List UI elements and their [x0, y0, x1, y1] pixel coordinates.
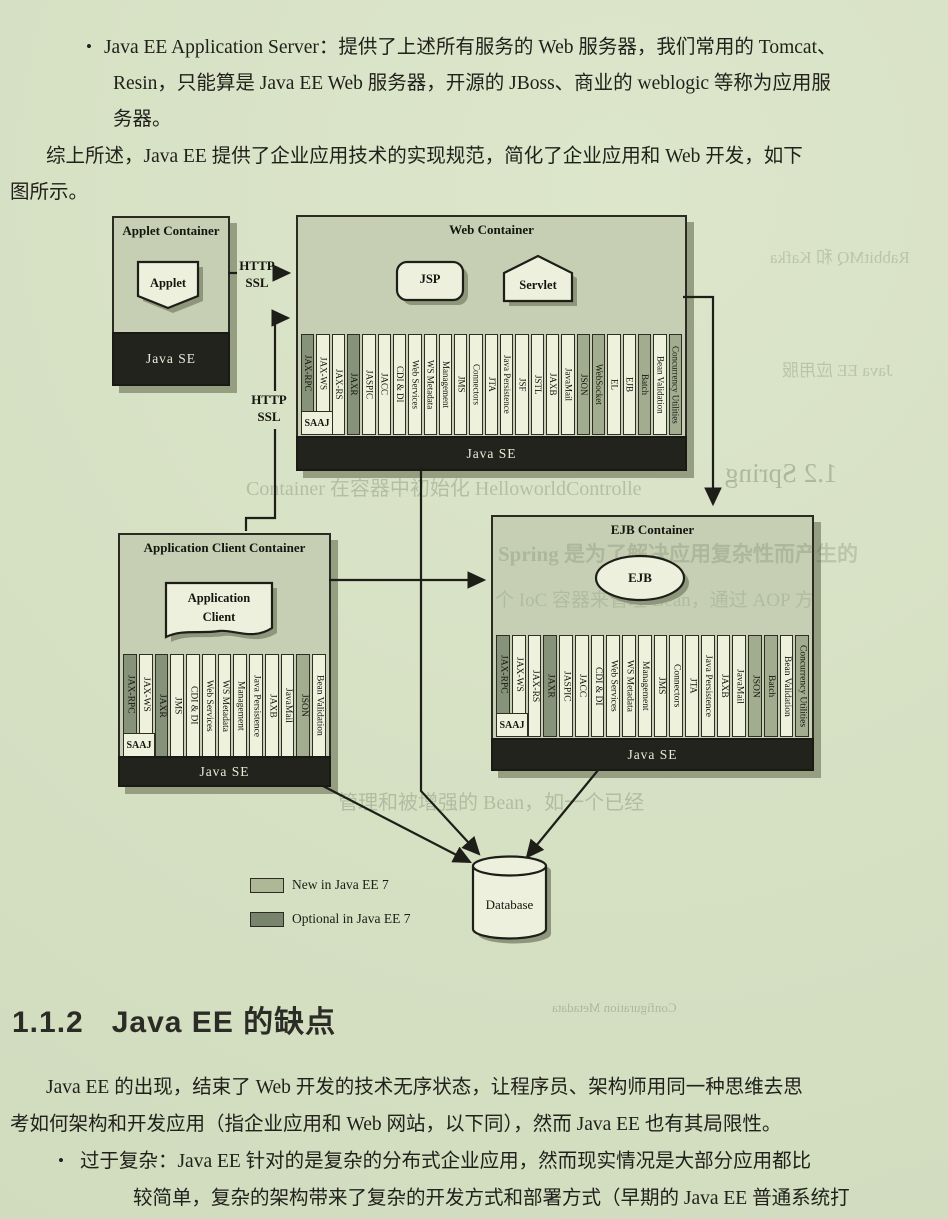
api-bar: Web Services: [408, 334, 421, 435]
api-bar: JavaMail: [281, 654, 295, 757]
intro-text: Java EE Application Server：提供了上述所有服务的 We…: [104, 37, 837, 58]
api-bar: JAXB: [265, 654, 279, 757]
api-bar-label: JAX-RS: [333, 369, 344, 400]
api-bar-label: JSF: [517, 378, 528, 392]
intro-bullet-line-2: Resin，只能算是 Java EE Web 服务器，开源的 JBoss、商业的…: [113, 66, 831, 95]
bleedthrough-text-mirrored: RabbitMQ 和 Kafka: [770, 243, 910, 268]
legend-optional: Optional in Java EE 7: [250, 911, 410, 927]
api-bar-label: JSON: [298, 694, 309, 717]
app-client-api-bars: JAX-RPC JAX-WS JAXR JMS CDI & DI Web Ser…: [122, 654, 327, 757]
api-bar: JAX-WS: [512, 635, 526, 714]
api-bar-label: JACC: [576, 674, 587, 697]
ejb-container-title: EJB Container: [493, 522, 812, 538]
api-bar-label: JMS: [172, 697, 183, 714]
web-api-bars: JAX-RPC JAX-WS JAX-RS JAXR JASPIC JACC C…: [300, 334, 683, 435]
api-bar-label: Concurrency Utilities: [670, 346, 681, 424]
api-bar-label: JAXB: [547, 373, 558, 396]
bullet-icon: •: [58, 1151, 64, 1171]
api-bar-label: EL: [608, 379, 619, 390]
saaj-box: SAAJ: [123, 733, 155, 757]
api-bar-label: JAXR: [348, 373, 359, 396]
api-bar-label: Java Persistence: [251, 675, 262, 737]
api-bar: JTA: [485, 334, 498, 435]
arrow-web-to-ejb: [683, 297, 713, 504]
api-bar-label: JTA: [686, 678, 697, 694]
api-bar-label: JavaMail: [562, 368, 573, 401]
bleedthrough-text: 管理和被增强的 Bean，如一个已经: [338, 786, 644, 815]
api-bar: JAXR: [543, 635, 557, 737]
application-client-label: Application Client: [166, 589, 272, 627]
legend-optional-swatch: [250, 912, 284, 927]
applet-container: Applet Container Java SE: [112, 216, 230, 386]
api-bar: CDI & DI: [393, 334, 406, 435]
legend-new: New in Java EE 7: [250, 877, 389, 893]
saaj-box: SAAJ: [496, 713, 528, 737]
java-se-label: Java SE: [466, 446, 516, 462]
api-bar-label: JAX-RPC: [302, 355, 313, 392]
api-bar-label: Java Persistence: [702, 655, 713, 717]
api-bar-label: JSON: [578, 374, 589, 396]
java-se-bar: Java SE: [118, 756, 331, 787]
api-bar: WS Metadata: [218, 654, 232, 757]
api-bar: Web Services: [202, 654, 216, 757]
api-bar: Web Services: [606, 635, 620, 737]
api-bar-label: JAX-WS: [513, 657, 524, 692]
ejb-api-bars: JAX-RPC JAX-WS JAX-RS JAXR JASPIC JACC C…: [495, 635, 810, 737]
saaj-box: SAAJ: [301, 411, 333, 435]
api-bar-label: JASPIC: [363, 370, 374, 399]
api-bar: Management: [439, 334, 452, 435]
api-bar: JACC: [575, 635, 589, 737]
api-bar: JSON: [296, 654, 310, 757]
api-bar-label: Web Services: [409, 360, 420, 409]
api-bar: JAXB: [546, 334, 559, 435]
section-para-line-1: Java EE 的出现，结束了 Web 开发的技术无序状态，让程序员、架构师用同…: [46, 1070, 803, 1099]
api-bar: CDI & DI: [591, 635, 605, 737]
java-se-bar: Java SE: [491, 738, 814, 771]
web-container-title: Web Container: [298, 222, 685, 238]
api-bar: JASPIC: [559, 635, 573, 737]
api-bar-label: JAXR: [156, 694, 167, 718]
bullet-icon: •: [86, 37, 92, 57]
api-bar-label: JMS: [455, 376, 466, 393]
java-se-bar: Java SE: [296, 436, 687, 471]
applet-label: Applet: [138, 276, 198, 291]
api-bar: JSON: [577, 334, 590, 435]
api-bar: JMS: [170, 654, 184, 757]
database-label: Database: [473, 897, 546, 913]
intro-bullet-line-3: 务器。: [113, 102, 172, 131]
bleedthrough-text-mirrored: 1.2 Spring: [725, 458, 838, 489]
http-ssl-label-2: HTTP SSL: [243, 391, 295, 425]
api-bar-label: JAX-RPC: [497, 655, 508, 694]
section-bullet-text: 过于复杂：Java EE 针对的是复杂的分布式企业应用，然而现实情况是大部分应用…: [80, 1151, 811, 1172]
api-bar-label: CDI & DI: [592, 667, 603, 706]
http-ssl-label-1: HTTP SSL: [231, 257, 283, 291]
api-bar: Java Persistence: [701, 635, 715, 737]
bleedthrough-text-mirrored: Configuration Metadata: [552, 1000, 677, 1016]
api-bar: JTA: [685, 635, 699, 737]
java-se-label: Java SE: [199, 764, 249, 780]
applet-container-title: Applet Container: [114, 223, 228, 239]
api-bar-label: JACC: [379, 373, 390, 395]
api-bar-label: Connectors: [471, 364, 482, 405]
api-bar: JAX-RPC: [123, 654, 137, 734]
web-container: Web Container JAX-RPC JAX-WS JAX-RS JAXR…: [296, 215, 687, 471]
api-bar-label: CDI & DI: [394, 366, 405, 403]
intro-summary-line-1: 综上所述，Java EE 提供了企业应用技术的实现规范，简化了企业应用和 Web…: [46, 139, 803, 168]
api-bar-label: Bean Validation: [654, 356, 665, 414]
api-bar-label: JAXB: [266, 694, 277, 718]
api-bar: Concurrency Utilities: [795, 635, 809, 737]
api-bar: JAXR: [155, 654, 169, 757]
api-bar-label: EJB: [624, 377, 635, 392]
application-client-container-title: Application Client Container: [120, 540, 329, 556]
api-bar-label: WS Metadata: [623, 660, 634, 712]
api-bar-label: JMS: [655, 677, 666, 694]
database-cylinder-top: [473, 857, 546, 876]
java-se-bar: Java SE: [112, 332, 230, 386]
application-client-container: Application Client Container JAX-RPC JAX…: [118, 533, 331, 787]
api-bar: Connectors: [669, 635, 683, 737]
api-bar-label: JAX-RS: [529, 670, 540, 702]
section-bullet-line-2: 较简单，复杂的架构带来了复杂的开发方式和部署方式（早期的 Java EE 普通系…: [133, 1181, 850, 1210]
api-bar-label: WebSocket: [593, 364, 604, 405]
api-bar: JSF: [515, 334, 528, 435]
api-bar: JAX-WS: [316, 334, 329, 412]
book-page: •Java EE Application Server：提供了上述所有服务的 W…: [0, 0, 948, 1219]
arrow-web-to-database: [421, 467, 479, 854]
http-label: HTTP: [231, 257, 283, 274]
api-bar: Bean Validation: [312, 654, 326, 757]
api-bar-label: JSTL: [532, 375, 543, 395]
servlet-label: Servlet: [504, 278, 572, 293]
api-bar: JavaMail: [732, 635, 746, 737]
api-bar-label: JAX-WS: [140, 677, 151, 712]
api-bar: Concurrency Utilities: [669, 334, 682, 435]
api-bar-label: Management: [235, 681, 246, 731]
api-bar: JAXR: [347, 334, 360, 435]
api-bar-label: Java Persistence: [501, 355, 512, 414]
api-bar: CDI & DI: [186, 654, 200, 757]
api-bar: JMS: [654, 635, 668, 737]
api-bar: JASPIC: [362, 334, 375, 435]
legend-optional-label: Optional in Java EE 7: [292, 911, 410, 927]
api-bar: Batch: [638, 334, 651, 435]
api-bar-label: Batch: [639, 374, 650, 395]
api-bar: JAXB: [717, 635, 731, 737]
api-bar-label: JASPIC: [560, 671, 571, 702]
api-bar-label: JTA: [486, 377, 497, 392]
ssl-label: SSL: [243, 408, 295, 425]
api-bar: Java Persistence: [500, 334, 513, 435]
api-bar-label: Web Services: [203, 680, 214, 732]
api-bar-label: JAXB: [718, 674, 729, 698]
api-bar-label: JavaMail: [734, 669, 745, 704]
api-bar: JAX-RS: [528, 635, 542, 737]
http-label: HTTP: [243, 391, 295, 408]
bleedthrough-text-mirrored: Java EE 应用服: [782, 356, 892, 381]
api-bar: WS Metadata: [424, 334, 437, 435]
api-bar: Management: [233, 654, 247, 757]
arrow-appclient-to-database: [323, 786, 470, 862]
legend-new-swatch: [250, 878, 284, 893]
api-bar-label: JAX-RPC: [124, 675, 135, 714]
line-web-to-appclient: [246, 429, 275, 531]
section-bullet-line-1: •过于复杂：Java EE 针对的是复杂的分布式企业应用，然而现实情况是大部分应…: [58, 1144, 811, 1173]
legend-new-label: New in Java EE 7: [292, 877, 389, 893]
api-bar: JAX-RPC: [301, 334, 314, 412]
api-bar: JAX-RPC: [496, 635, 510, 714]
section-para-line-2: 考如何架构和开发应用（指企业应用和 Web 网站，以下同），然而 Java EE…: [10, 1107, 781, 1136]
arrow-ejb-to-database: [527, 769, 599, 857]
jsp-label: JSP: [397, 272, 463, 287]
intro-bullet-line-1: •Java EE Application Server：提供了上述所有服务的 W…: [86, 30, 837, 59]
api-bar-label: Connectors: [671, 664, 682, 707]
api-bar: JMS: [454, 334, 467, 435]
api-bar: JavaMail: [561, 334, 574, 435]
api-bar-label: Management: [639, 661, 650, 711]
api-bar-label: Management: [440, 361, 451, 408]
api-bar: JSTL: [531, 334, 544, 435]
api-bar-label: Bean Validation: [314, 675, 325, 736]
api-bar-label: JavaMail: [282, 688, 293, 723]
api-bar: Bean Validation: [653, 334, 666, 435]
arrow-into-web: [275, 318, 288, 391]
application-client-label-line1: Application: [166, 589, 272, 608]
application-client-label-line2: Client: [166, 608, 272, 627]
api-bar: JSON: [748, 635, 762, 737]
api-bar: WebSocket: [592, 334, 605, 435]
api-bar: EJB: [623, 334, 636, 435]
api-bar-label: Web Services: [608, 660, 619, 712]
api-bar: WS Metadata: [622, 635, 636, 737]
section-title: Java EE 的缺点: [112, 1006, 336, 1039]
api-bar-label: Concurrency Utilities: [797, 645, 808, 727]
api-bar: JAX-WS: [139, 654, 153, 734]
api-bar: JACC: [378, 334, 391, 435]
bleedthrough-text: Container 在容器中初始化 HelloworldControlle: [246, 472, 642, 501]
api-bar-label: WS Metadata: [425, 360, 436, 409]
api-bar-label: JAXR: [545, 674, 556, 698]
java-se-label: Java SE: [146, 351, 196, 367]
section-number: 1.1.2: [12, 1006, 84, 1039]
api-bar: Java Persistence: [249, 654, 263, 757]
api-bar: Bean Validation: [780, 635, 794, 737]
ssl-label: SSL: [231, 274, 283, 291]
api-bar: Connectors: [469, 334, 482, 435]
api-bar-label: Batch: [765, 675, 776, 697]
intro-summary-line-2: 图所示。: [10, 175, 88, 204]
api-bar: Batch: [764, 635, 778, 737]
api-bar-label: CDI & DI: [187, 686, 198, 725]
ejb-container: EJB Container JAX-RPC JAX-WS JAX-RS JAXR…: [491, 515, 814, 771]
section-heading: 1.1.2Java EE 的缺点: [12, 997, 336, 1041]
api-bar-label: JAX-WS: [317, 357, 328, 390]
api-bar-label: WS Metadata: [219, 680, 230, 732]
api-bar: EL: [607, 334, 620, 435]
api-bar: Management: [638, 635, 652, 737]
api-bar: JAX-RS: [332, 334, 345, 435]
java-se-label: Java SE: [627, 747, 677, 763]
api-bar-label: JSON: [749, 675, 760, 698]
ejb-label: EJB: [596, 570, 684, 586]
api-bar-label: Bean Validation: [781, 656, 792, 717]
